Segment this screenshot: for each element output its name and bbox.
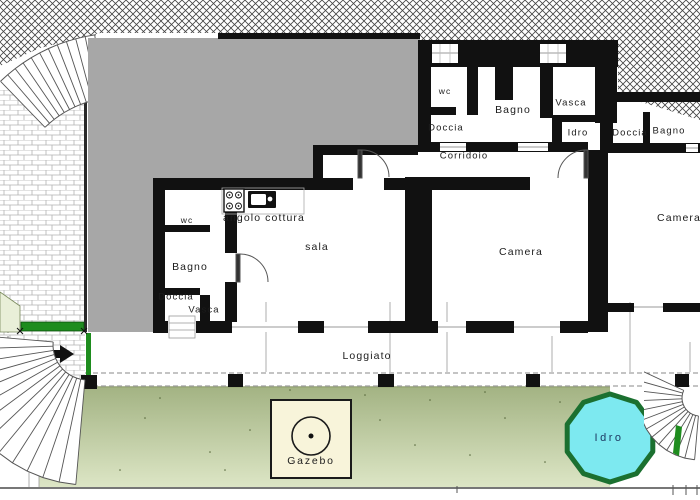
room-label-bagno-right: Bagno [653, 126, 686, 137]
label-gazebo: Gazebo [287, 455, 335, 467]
sink-icon [248, 191, 276, 208]
entrance-green-bar [21, 322, 84, 331]
label-pool-idro: Idro [595, 432, 624, 444]
entrance-green-post [86, 333, 91, 377]
floor-plan-canvas [0, 0, 700, 500]
kitchen-fixtures [222, 188, 304, 214]
room-label-corridoio: Corridoio [440, 151, 488, 162]
room-label-doccia-top: Doccia [428, 123, 464, 134]
room-label-angolo-cottura: angolo cottura [223, 212, 305, 224]
room-label-bagno-top: Bagno [495, 104, 531, 116]
room-label-camera-main: Camera [499, 246, 543, 258]
room-label-sala: sala [305, 241, 329, 253]
room-label-wc-top: wc [439, 86, 452, 96]
vasca-steps [169, 316, 195, 338]
room-label-vasca-left: Vasca [188, 305, 219, 316]
loggiato-grid-lines [266, 302, 690, 372]
floor-plan: wc Bagno Doccia Vasca angolo cottura sal… [0, 0, 700, 500]
room-label-bagno-left: Bagno [172, 261, 208, 273]
room-label-loggiato: Loggiato [342, 350, 391, 362]
room-label-doccia-left: Doccia [158, 292, 194, 303]
paving-edge-line [84, 95, 87, 332]
room-label-doccia-right: Doccia [612, 128, 648, 139]
stove-icon [224, 189, 244, 212]
room-label-wc-left: wc [181, 215, 194, 225]
room-label-idro-bath: Idro [568, 128, 589, 139]
plot-boundary-line [0, 487, 700, 489]
paving-herringbone [0, 88, 85, 378]
room-label-camera-right: Camera [657, 212, 700, 224]
room-label-vasca-top: Vasca [555, 98, 586, 109]
